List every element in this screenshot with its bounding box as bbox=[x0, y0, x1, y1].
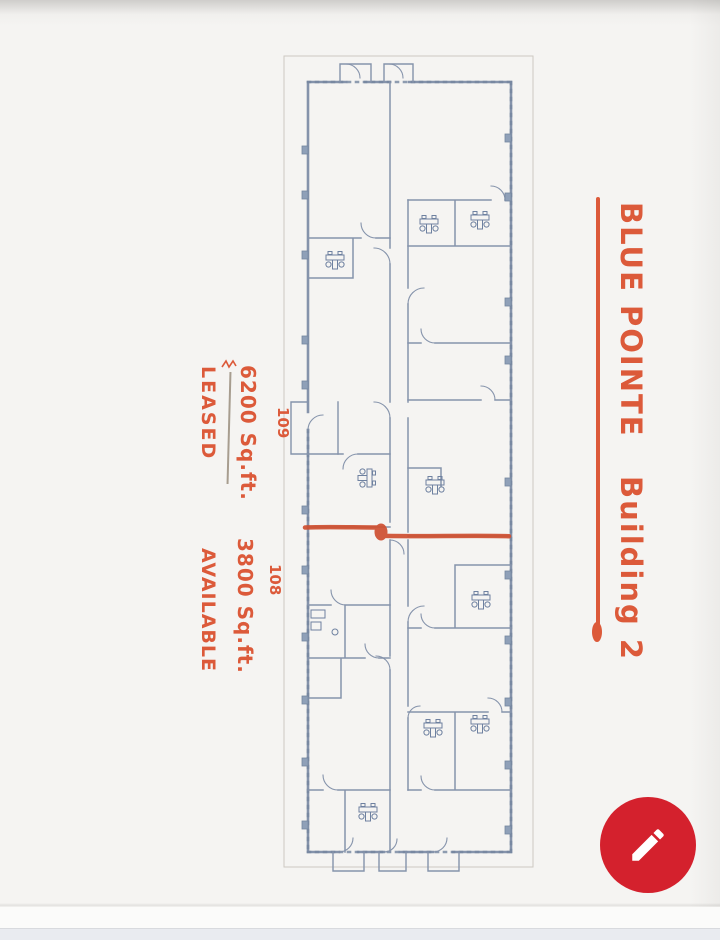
leased-label: LEASED bbox=[197, 366, 219, 460]
suite-number-109: 109 bbox=[274, 407, 292, 438]
paper-right-shadow bbox=[690, 0, 720, 910]
title-line-1: BLUE POINTE bbox=[614, 202, 648, 438]
paper-top-shadow bbox=[0, 0, 720, 26]
bottom-bar bbox=[0, 928, 720, 940]
title-underline bbox=[596, 197, 600, 634]
available-label: AVAILABLE bbox=[197, 548, 219, 672]
available-area-label: 3800 Sq.ft. bbox=[233, 538, 257, 674]
building-outline bbox=[308, 82, 511, 852]
scanned-floorplan-page: BLUE POINTE Building 2 LEASED 6200 Sq.ft… bbox=[0, 0, 720, 940]
kitchen-fixtures bbox=[311, 610, 338, 635]
furniture bbox=[311, 212, 490, 822]
pencil-icon bbox=[627, 824, 669, 866]
leased-underline bbox=[227, 372, 232, 484]
edit-fab-button[interactable] bbox=[600, 797, 696, 893]
red-divider-line bbox=[305, 524, 509, 541]
title-line-2: Building 2 bbox=[614, 476, 648, 661]
door-arcs bbox=[308, 64, 505, 852]
floor-plan-drawing bbox=[283, 50, 537, 880]
annotation-title: BLUE POINTE Building 2 bbox=[614, 202, 648, 661]
window-column-marks bbox=[302, 134, 511, 834]
interior-walls bbox=[308, 82, 511, 852]
title-underline-end-blob bbox=[592, 622, 602, 642]
suite-number-108: 108 bbox=[266, 564, 284, 595]
below-paper-area bbox=[0, 907, 720, 928]
leased-area-label: 6200 Sq.ft. bbox=[236, 365, 260, 501]
